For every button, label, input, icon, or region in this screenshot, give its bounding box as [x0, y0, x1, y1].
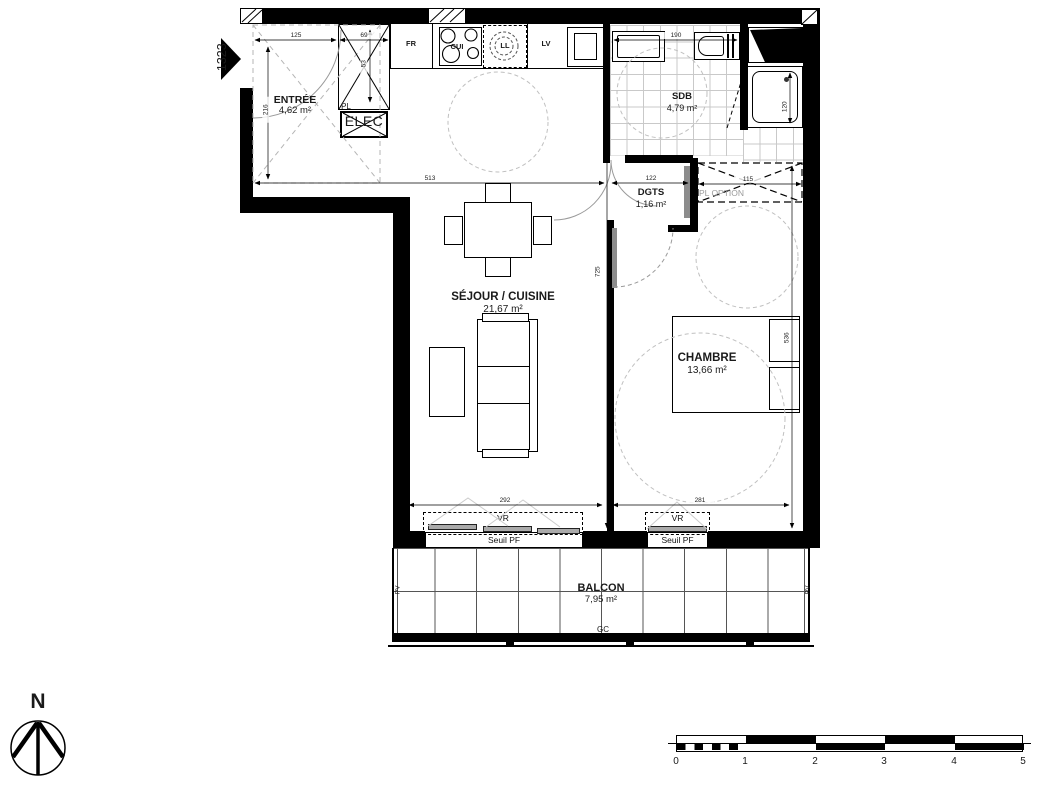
dim-53: 53: [360, 52, 367, 76]
room-chambre-area: 13,66 m²: [647, 365, 767, 377]
dim-281: 281: [686, 497, 714, 504]
dim-513: 513: [416, 175, 444, 182]
dishwasher-label: LV: [533, 40, 559, 49]
balcony-gc-label: GC: [590, 625, 616, 634]
hob-label: CUI: [444, 43, 470, 52]
scale-seg-2: [816, 743, 885, 750]
dim-122: 122: [637, 175, 665, 182]
dim-125: 125: [282, 32, 310, 39]
room-sdb-area: 4,79 m²: [632, 103, 732, 113]
scale-label-4: 4: [944, 756, 964, 768]
washing-machine-label: LL: [492, 42, 518, 51]
scale-label-0: 0: [666, 756, 686, 768]
dim-115: 115: [734, 176, 762, 183]
elec-label: ELEC: [340, 113, 388, 129]
room-dgts-name: DGTS: [611, 188, 691, 199]
room-balcon-area: 7,95 m²: [540, 595, 662, 606]
closet-pl-label: PL: [338, 102, 354, 111]
plan-linework-svg: [0, 0, 1042, 800]
scale-label-2: 2: [805, 756, 825, 768]
room-dgts-area: 1,16 m²: [611, 199, 691, 209]
compass-north-label: N: [24, 690, 52, 714]
scale-label-5: 5: [1013, 756, 1033, 768]
scale-label-1: 1: [735, 756, 755, 768]
scale-seg-0-checker: [677, 743, 746, 750]
room-sdb-name: SDB: [632, 92, 732, 103]
dim-120: 120: [781, 94, 788, 120]
scale-bar-axis: [668, 743, 1031, 745]
dim-536: 536: [783, 325, 790, 351]
room-sejour-name: SÉJOUR / CUISINE: [423, 291, 583, 304]
dim-69: 69: [350, 32, 378, 39]
room-balcon-name: BALCON: [540, 582, 662, 595]
floor-plan-canvas: Seuil PF Seuil PF VR VR: [0, 0, 1042, 800]
scale-label-3: 3: [874, 756, 894, 768]
pv-right-label: PV: [804, 582, 811, 598]
room-chambre-name: CHAMBRE: [647, 352, 767, 365]
dim-216: 216: [262, 97, 269, 123]
fridge-label: FR: [398, 40, 424, 49]
pl-option-label: PL OPTION: [699, 189, 771, 199]
dim-190: 190: [662, 32, 690, 39]
plan-code: 1323: [215, 35, 229, 79]
dim-725: 725: [594, 259, 601, 285]
dim-292: 292: [491, 497, 519, 504]
pv-left-label: PV: [394, 582, 401, 598]
scale-seg-4: [955, 743, 1024, 750]
compass-icon: [11, 721, 65, 775]
room-sejour-area: 21,67 m²: [423, 304, 583, 316]
